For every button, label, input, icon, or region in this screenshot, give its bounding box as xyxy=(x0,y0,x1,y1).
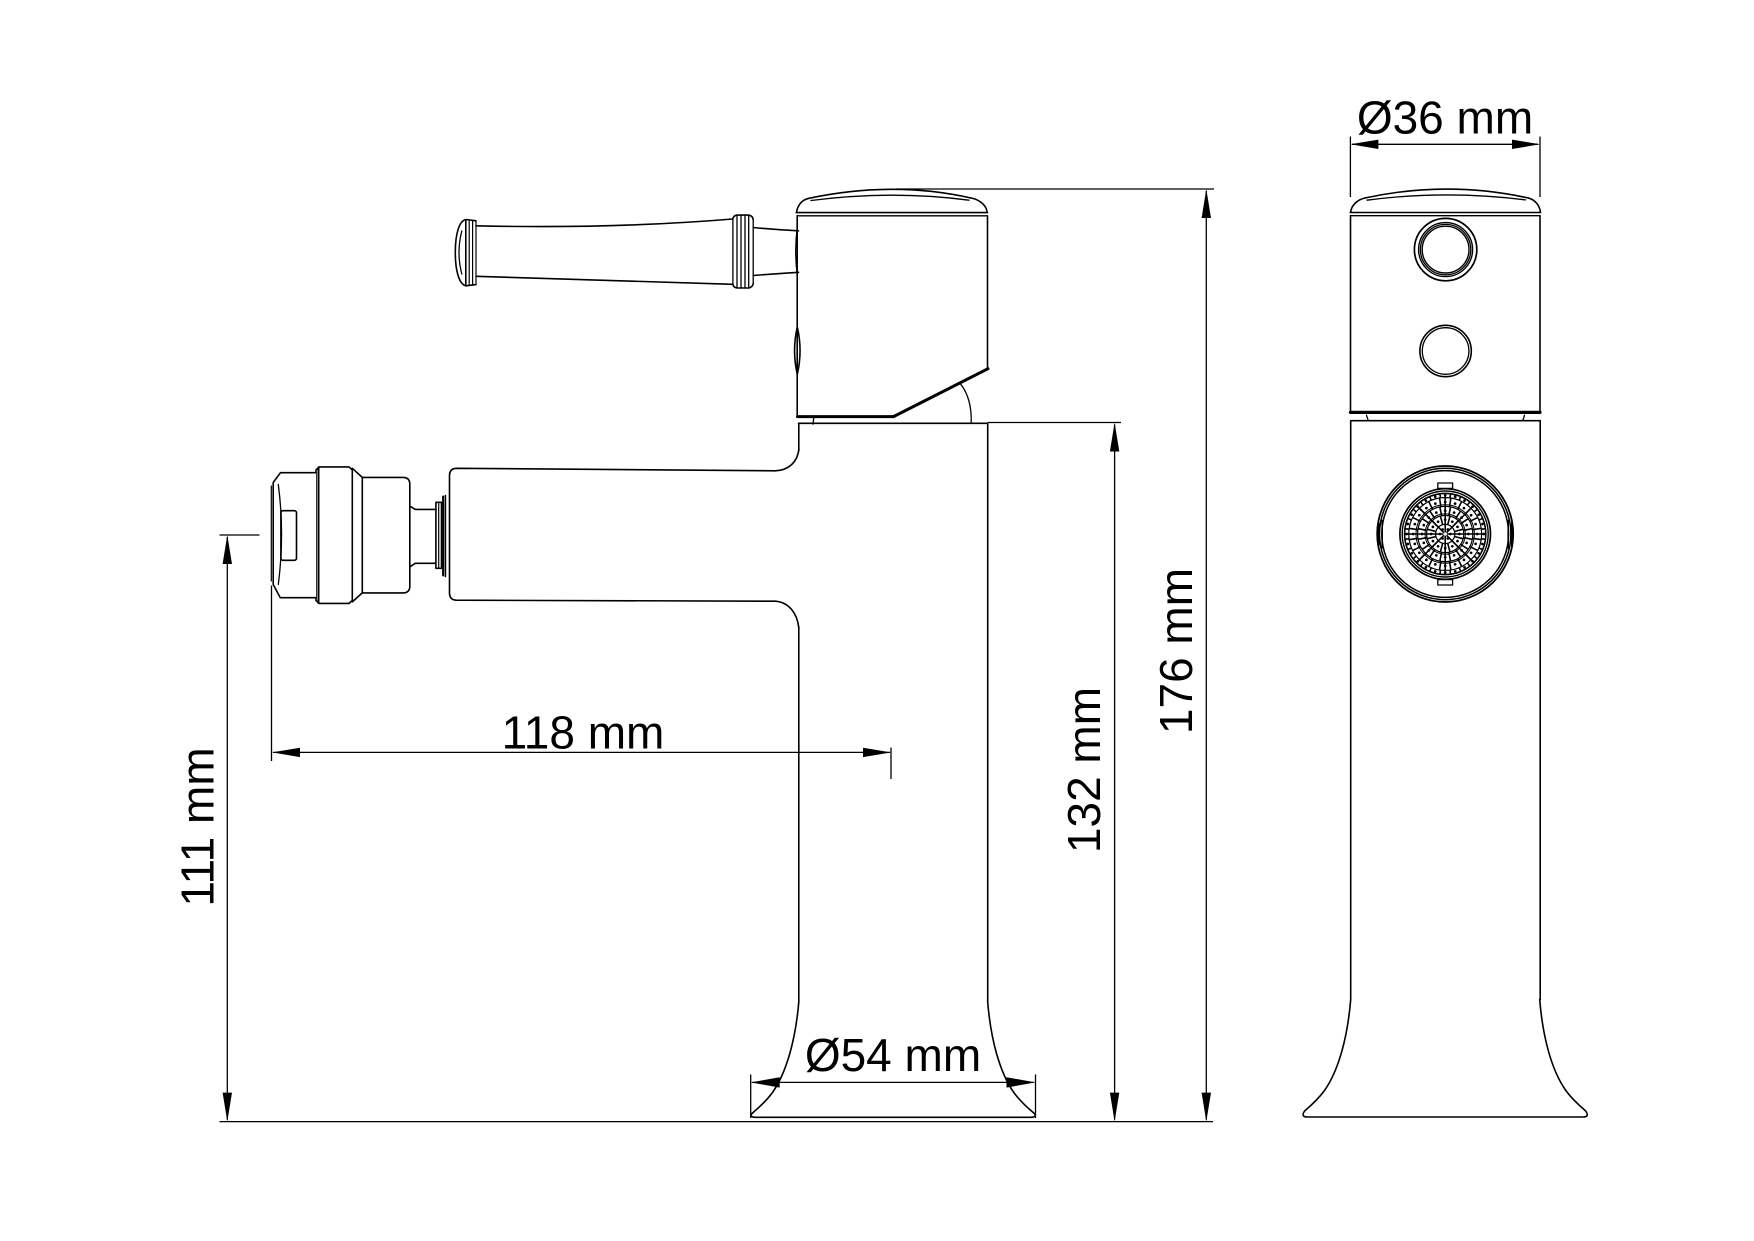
svg-text:Ø36 mm: Ø36 mm xyxy=(1357,92,1533,144)
svg-text:132 mm: 132 mm xyxy=(1058,687,1110,853)
svg-text:118 mm: 118 mm xyxy=(502,707,665,759)
svg-text:Ø54 mm: Ø54 mm xyxy=(805,1029,981,1081)
svg-text:111 mm: 111 mm xyxy=(172,747,224,906)
svg-text:176 mm: 176 mm xyxy=(1150,568,1202,734)
